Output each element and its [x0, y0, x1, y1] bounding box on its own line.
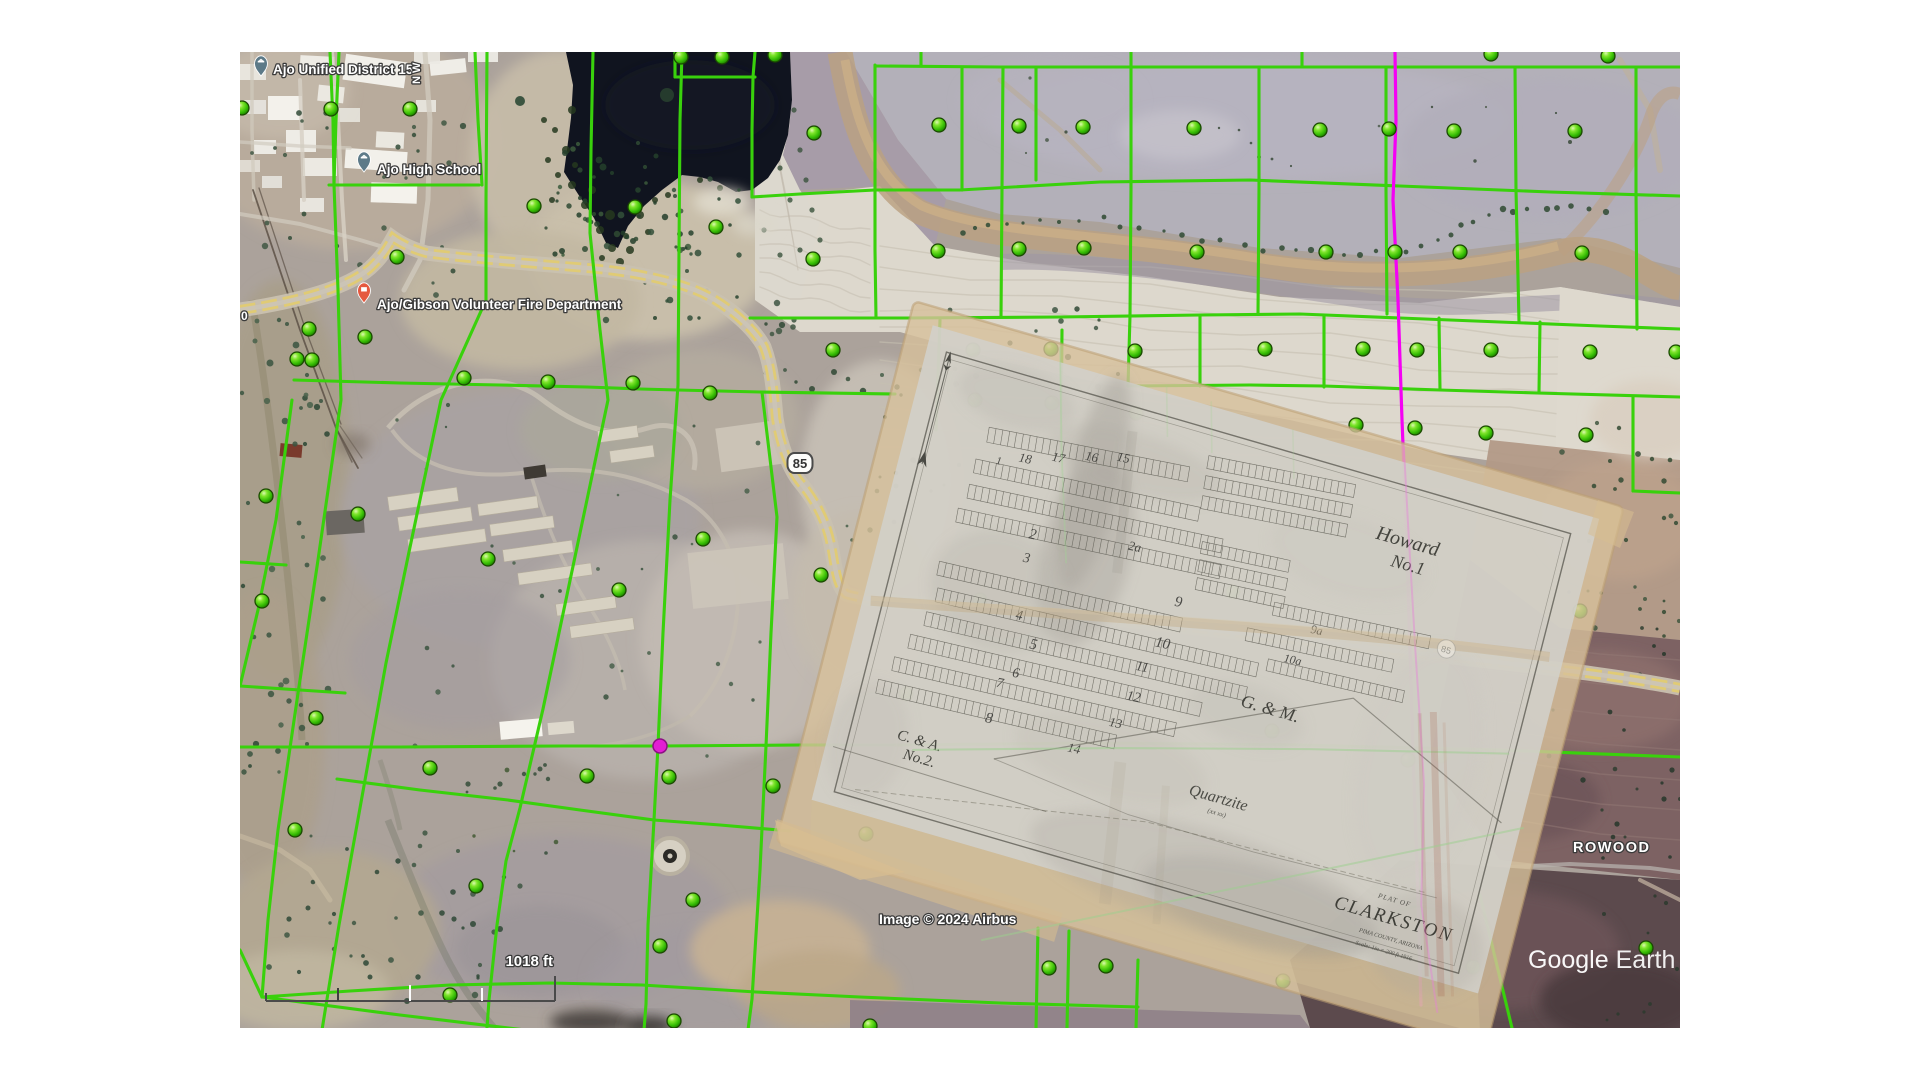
svg-text:0: 0 — [241, 309, 248, 323]
svg-text:ROWOOD: ROWOOD — [1573, 840, 1650, 856]
svg-text:1018 ft: 1018 ft — [505, 953, 553, 970]
svg-text:Ajo/Gibson Volunteer Fire Depa: Ajo/Gibson Volunteer Fire Department — [377, 297, 622, 312]
svg-text:12: 12 — [1125, 689, 1141, 707]
svg-text:11: 11 — [1134, 659, 1149, 677]
svg-text:Ajo Unified District 15: Ajo Unified District 15 — [273, 62, 414, 77]
svg-text:N W: N W — [411, 62, 423, 84]
svg-text:85: 85 — [793, 456, 807, 471]
svg-text:GoogleEarth: GoogleEarth — [1528, 946, 1675, 974]
svg-text:Image © 2024 Airbus: Image © 2024 Airbus — [879, 911, 1017, 927]
svg-text:Ajo High School: Ajo High School — [377, 162, 481, 177]
